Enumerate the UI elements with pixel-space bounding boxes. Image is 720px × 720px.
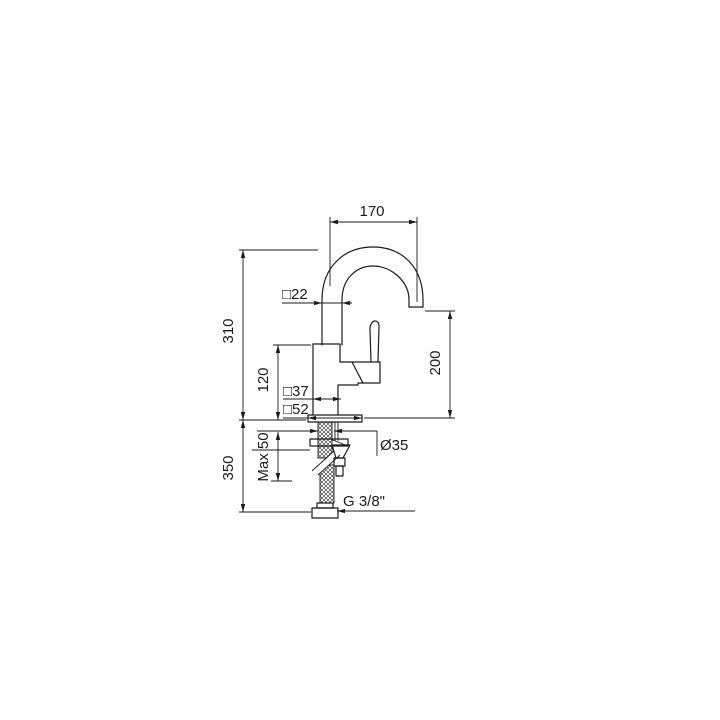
dim-label-170: 170 [359, 203, 384, 220]
dim-label-max50: Max 50 [255, 432, 272, 481]
hose-upper [318, 422, 332, 458]
faucet-technical-drawing: 170 310 350 120 Max 50 200 [0, 0, 720, 720]
dim-label-22: □22 [282, 286, 308, 303]
dim-label-120: 120 [255, 367, 272, 392]
dim-label-310: 310 [220, 318, 237, 343]
dim-thread: G 3/8" [337, 493, 415, 513]
handle-block-diagonal [352, 362, 363, 383]
dim-label-thread: G 3/8" [343, 493, 385, 510]
dim-base-section: □52 [283, 401, 362, 420]
dim-label-37: □37 [283, 383, 309, 400]
fitting-nut-lower [336, 466, 343, 476]
lever-handle [370, 321, 379, 362]
faucet-outline [308, 247, 423, 518]
hose-collar [317, 503, 333, 508]
hose-end-nut [312, 508, 338, 518]
base-plate [308, 415, 362, 422]
dim-label-350: 350 [220, 455, 237, 480]
dim-label-200: 200 [427, 350, 444, 375]
dim-body-section: □37 [283, 383, 341, 401]
spout-inner-arc [342, 266, 409, 345]
dim-spout-reach: 170 [330, 203, 417, 302]
dim-label-diam35: Ø35 [380, 437, 408, 454]
spout-outer-arc [322, 247, 423, 345]
dim-label-52: □52 [283, 401, 309, 418]
dim-outlet-height: 200 [364, 311, 455, 418]
handle-block [338, 362, 380, 415]
dim-max-deck: Max 50 [252, 432, 310, 482]
